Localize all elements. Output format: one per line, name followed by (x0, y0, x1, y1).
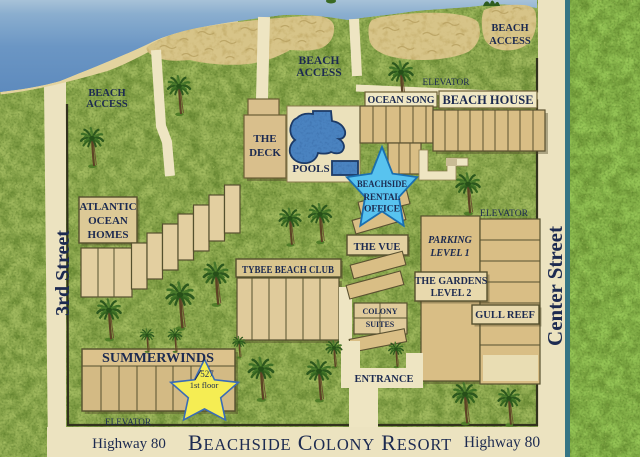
svg-text:Highway 80: Highway 80 (92, 436, 166, 452)
svg-text:HOMES: HOMES (88, 229, 129, 241)
svg-text:THE VUE: THE VUE (354, 242, 401, 253)
svg-text:LEVEL 1: LEVEL 1 (429, 248, 469, 259)
svg-text:THE GARDENS: THE GARDENS (415, 276, 488, 287)
svg-text:ACCESS: ACCESS (296, 67, 341, 79)
svg-text:OCEAN SONG: OCEAN SONG (368, 94, 435, 106)
svg-text:POOLS: POOLS (292, 163, 329, 175)
svg-text:ACCESS: ACCESS (489, 36, 531, 47)
svg-text:ELEVATOR: ELEVATOR (480, 209, 529, 219)
svg-text:BEACH: BEACH (299, 55, 340, 67)
svg-text:GULL REEF: GULL REEF (475, 310, 535, 321)
svg-text:ELEVATOR: ELEVATOR (105, 418, 152, 428)
svg-text:THE: THE (253, 133, 276, 145)
svg-text:DECK: DECK (249, 147, 281, 159)
svg-text:OFFICE: OFFICE (364, 205, 400, 215)
svg-text:3rd Street: 3rd Street (52, 230, 74, 316)
svg-text:COLONY: COLONY (362, 307, 397, 316)
svg-text:BEACH: BEACH (88, 88, 125, 99)
svg-text:ELEVATOR: ELEVATOR (423, 78, 471, 88)
svg-text:ACCESS: ACCESS (86, 99, 128, 110)
svg-text:1st floor: 1st floor (190, 380, 219, 390)
svg-text:SUMMERWINDS: SUMMERWINDS (102, 351, 214, 366)
svg-text:527: 527 (200, 369, 214, 379)
svg-text:PARKING: PARKING (428, 235, 472, 246)
svg-text:BEACHSIDE: BEACHSIDE (357, 180, 407, 190)
svg-text:TYBEE BEACH CLUB: TYBEE BEACH CLUB (242, 264, 335, 276)
svg-text:SUITES: SUITES (366, 320, 395, 329)
svg-text:Highway 80: Highway 80 (464, 434, 540, 451)
svg-text:Center Street: Center Street (543, 226, 567, 346)
svg-text:ENTRANCE: ENTRANCE (355, 374, 414, 385)
svg-text:LEVEL 2: LEVEL 2 (431, 288, 472, 299)
svg-text:ATLANTIC: ATLANTIC (79, 201, 136, 213)
svg-text:OCEAN: OCEAN (88, 215, 128, 227)
svg-text:BEACH: BEACH (491, 23, 528, 34)
svg-text:RENTAL: RENTAL (364, 193, 401, 203)
svg-text:BEACH HOUSE: BEACH HOUSE (443, 93, 534, 107)
